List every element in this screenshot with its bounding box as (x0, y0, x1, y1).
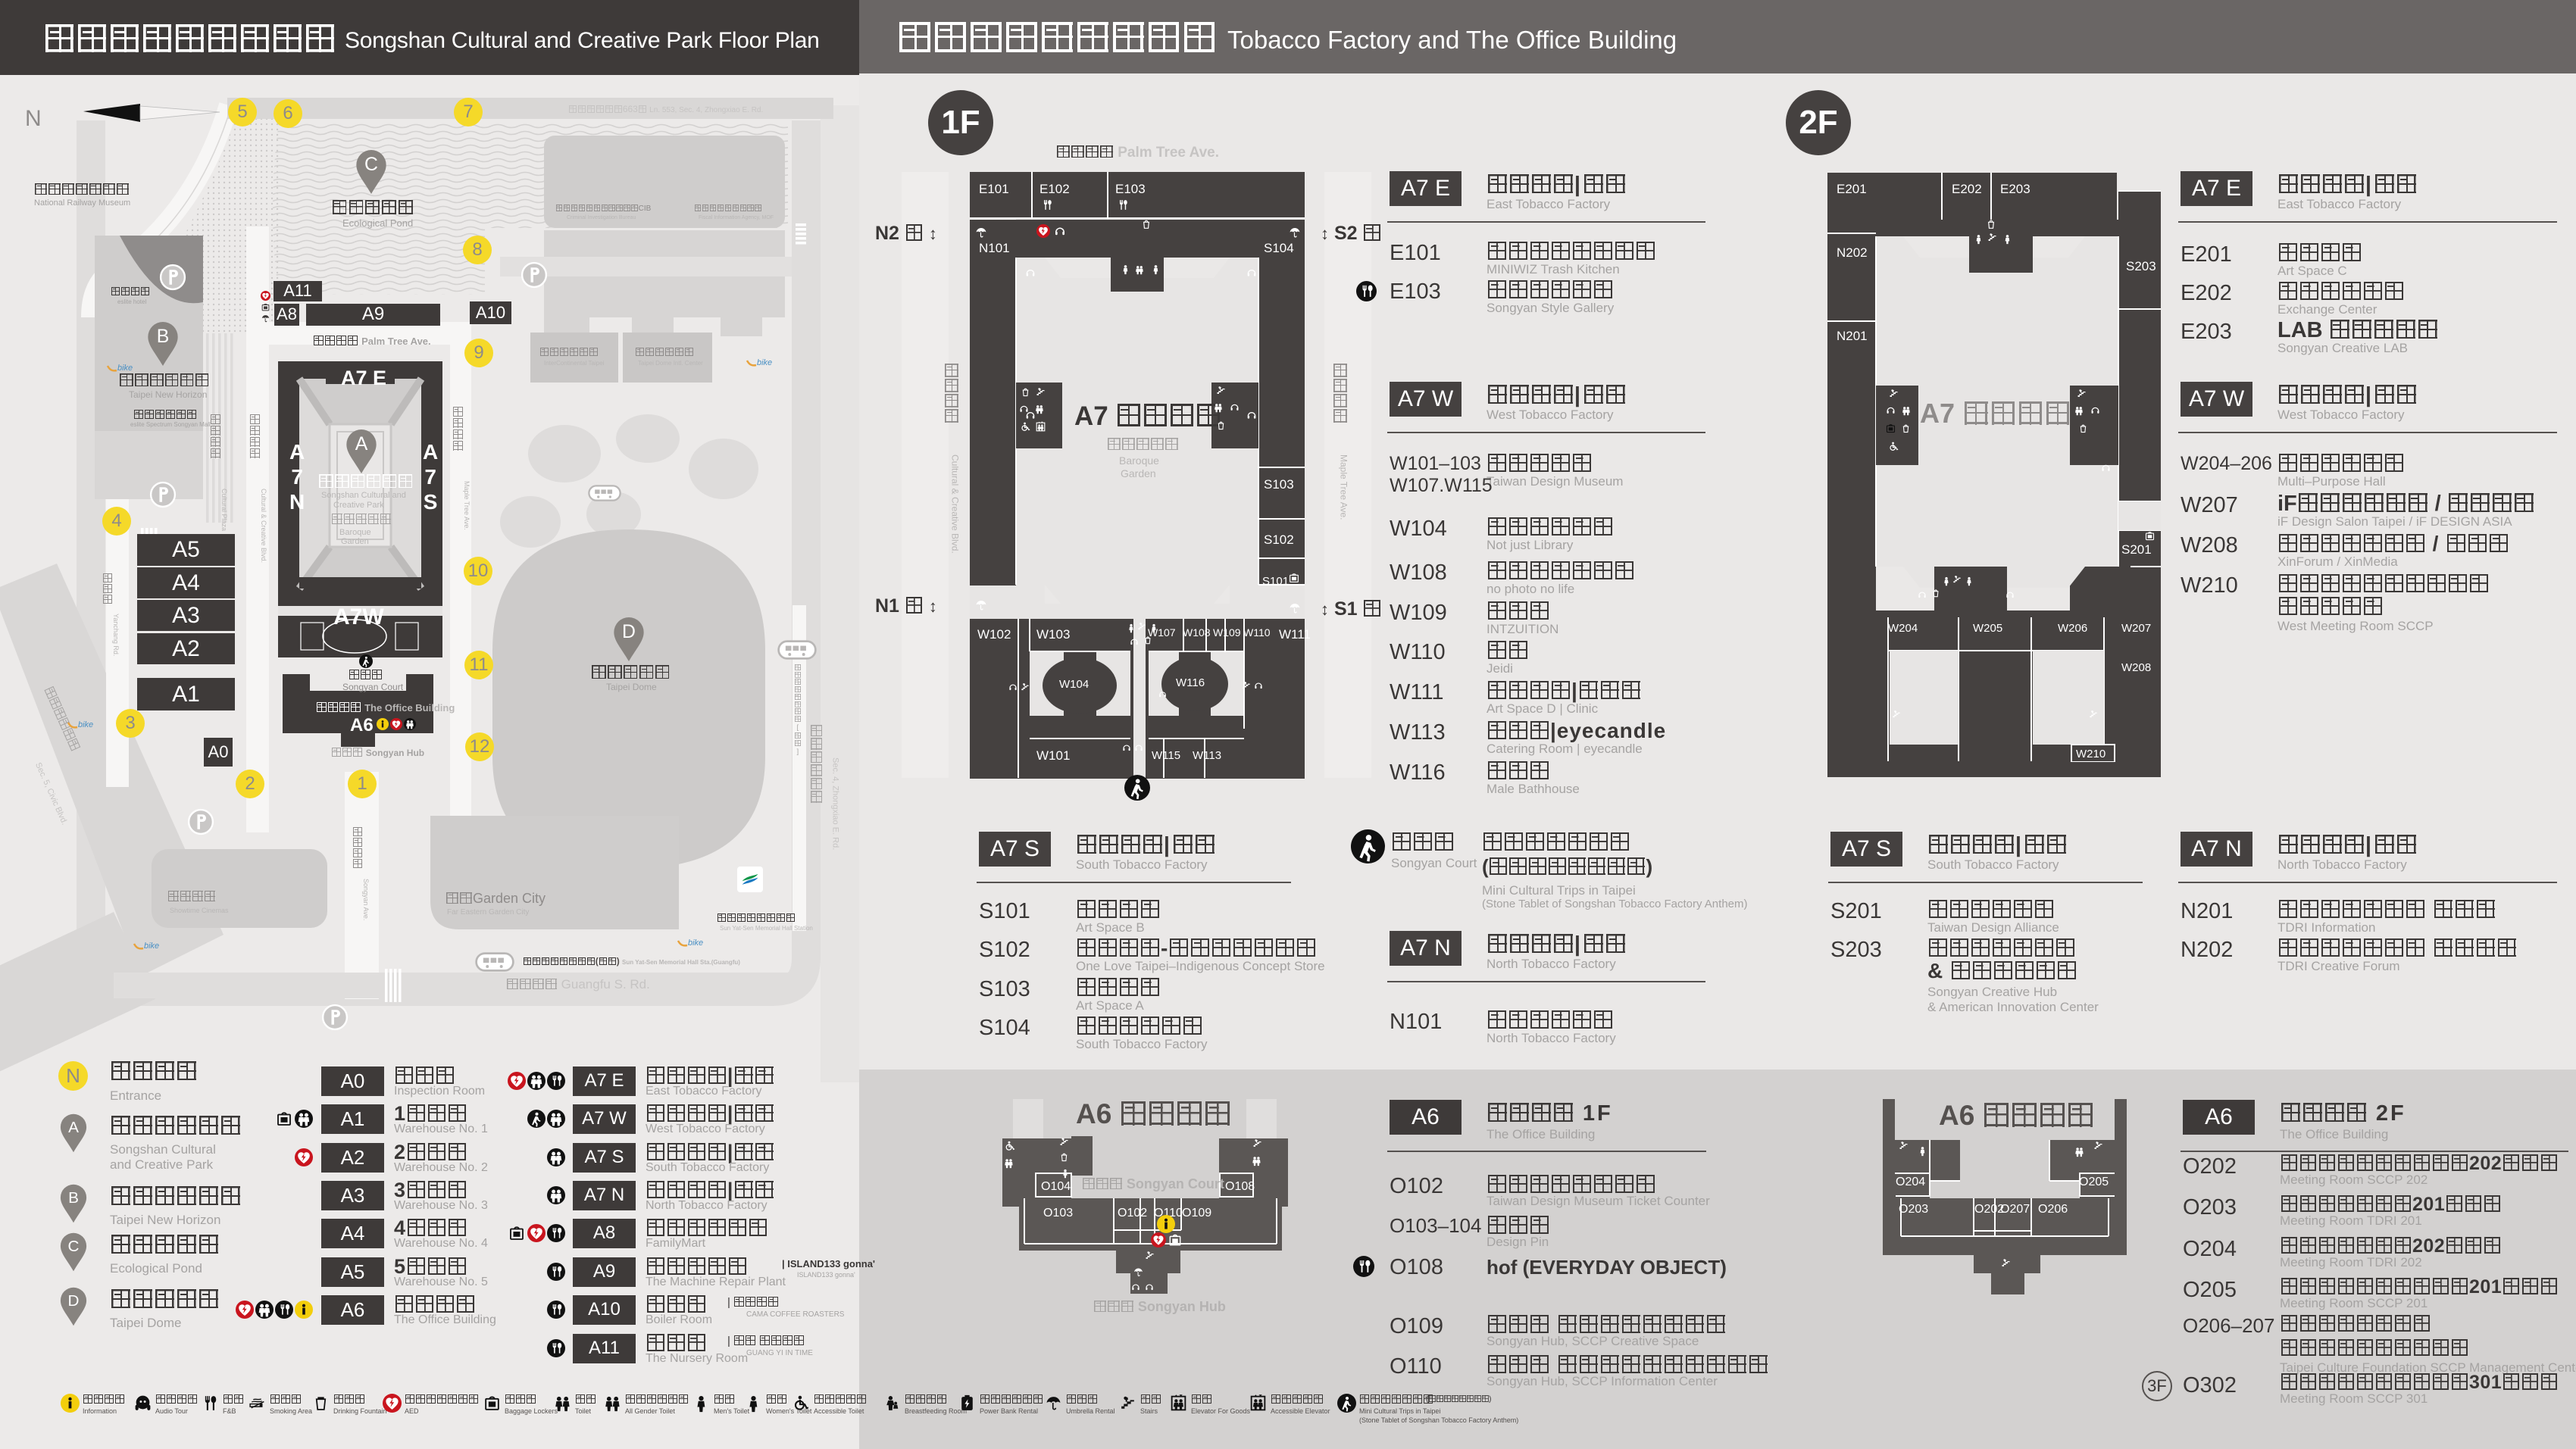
svg-text:A: A (355, 434, 368, 454)
svg-text:bike: bike (757, 358, 772, 367)
svg-text:bike: bike (117, 364, 133, 373)
svg-text:C: C (364, 155, 378, 175)
svg-text:B: B (157, 326, 170, 347)
svg-text:D: D (68, 1292, 80, 1310)
svg-text:B: B (68, 1189, 79, 1207)
svg-text:A: A (68, 1119, 79, 1136)
svg-text:bike: bike (78, 720, 93, 729)
svg-text:bike: bike (144, 942, 159, 951)
svg-text:bike: bike (688, 938, 703, 948)
svg-text:D: D (622, 622, 636, 642)
svg-text:C: C (68, 1238, 80, 1255)
